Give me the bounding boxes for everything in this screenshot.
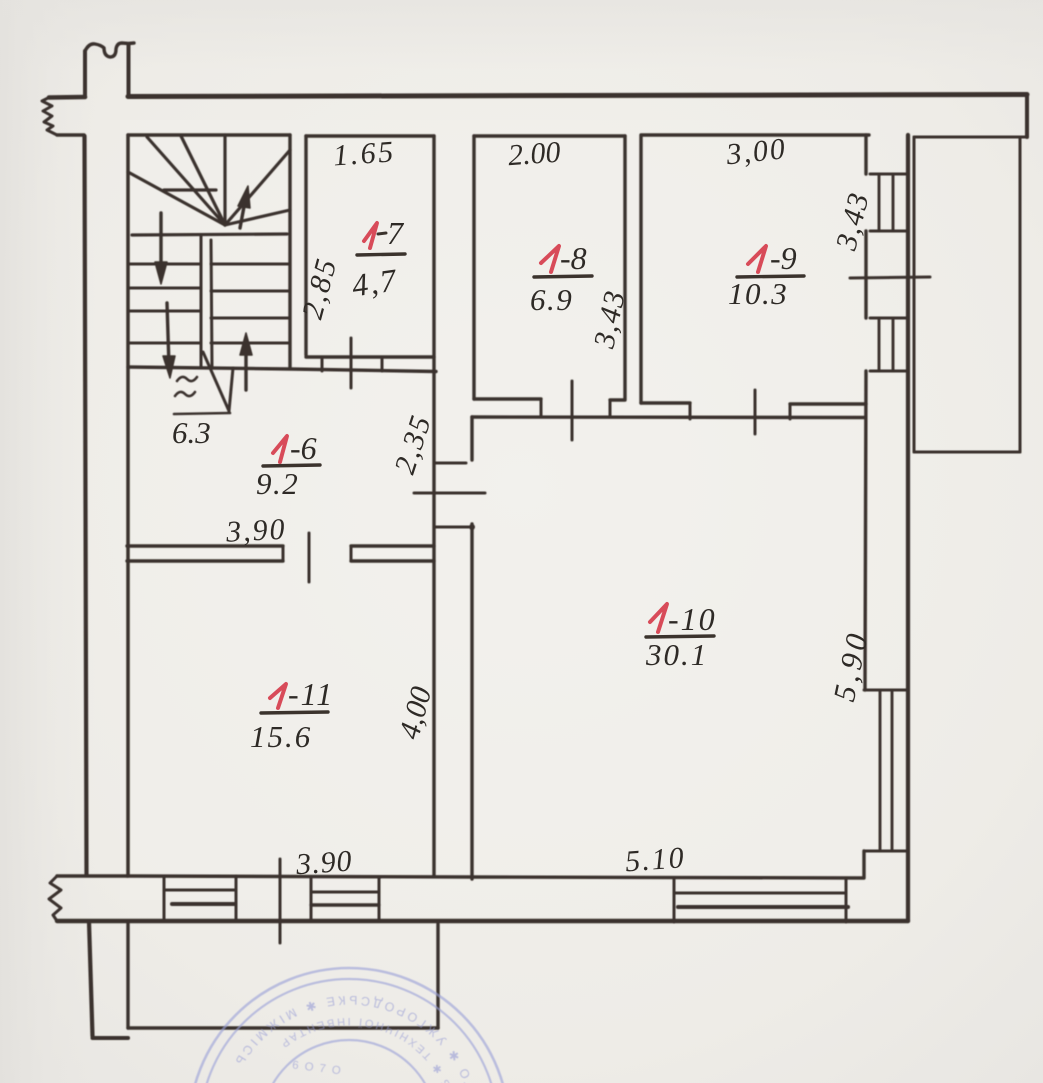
svg-text:-10: -10 <box>668 601 717 637</box>
svg-text:1.65: 1.65 <box>332 135 397 172</box>
svg-text:15.6: 15.6 <box>250 719 312 754</box>
svg-text:7: 7 <box>387 215 405 251</box>
svg-text:3.90: 3.90 <box>294 844 354 881</box>
svg-text:3,90: 3,90 <box>224 513 287 549</box>
svg-text:9.2: 9.2 <box>256 466 299 501</box>
svg-text:4,7: 4,7 <box>350 261 401 303</box>
svg-text:-9: -9 <box>770 240 797 276</box>
svg-text:6.3: 6.3 <box>172 415 211 450</box>
svg-text:-8: -8 <box>560 240 587 276</box>
svg-text:5.10: 5.10 <box>624 841 687 878</box>
svg-text:10.3: 10.3 <box>728 276 788 311</box>
svg-text:6.9: 6.9 <box>530 282 573 317</box>
svg-text:2.00: 2.00 <box>507 136 562 173</box>
svg-text:-6: -6 <box>290 430 317 466</box>
svg-text:3,00: 3,00 <box>724 132 789 171</box>
svg-text:-11: -11 <box>288 676 334 712</box>
svg-text:30.1: 30.1 <box>645 637 708 672</box>
